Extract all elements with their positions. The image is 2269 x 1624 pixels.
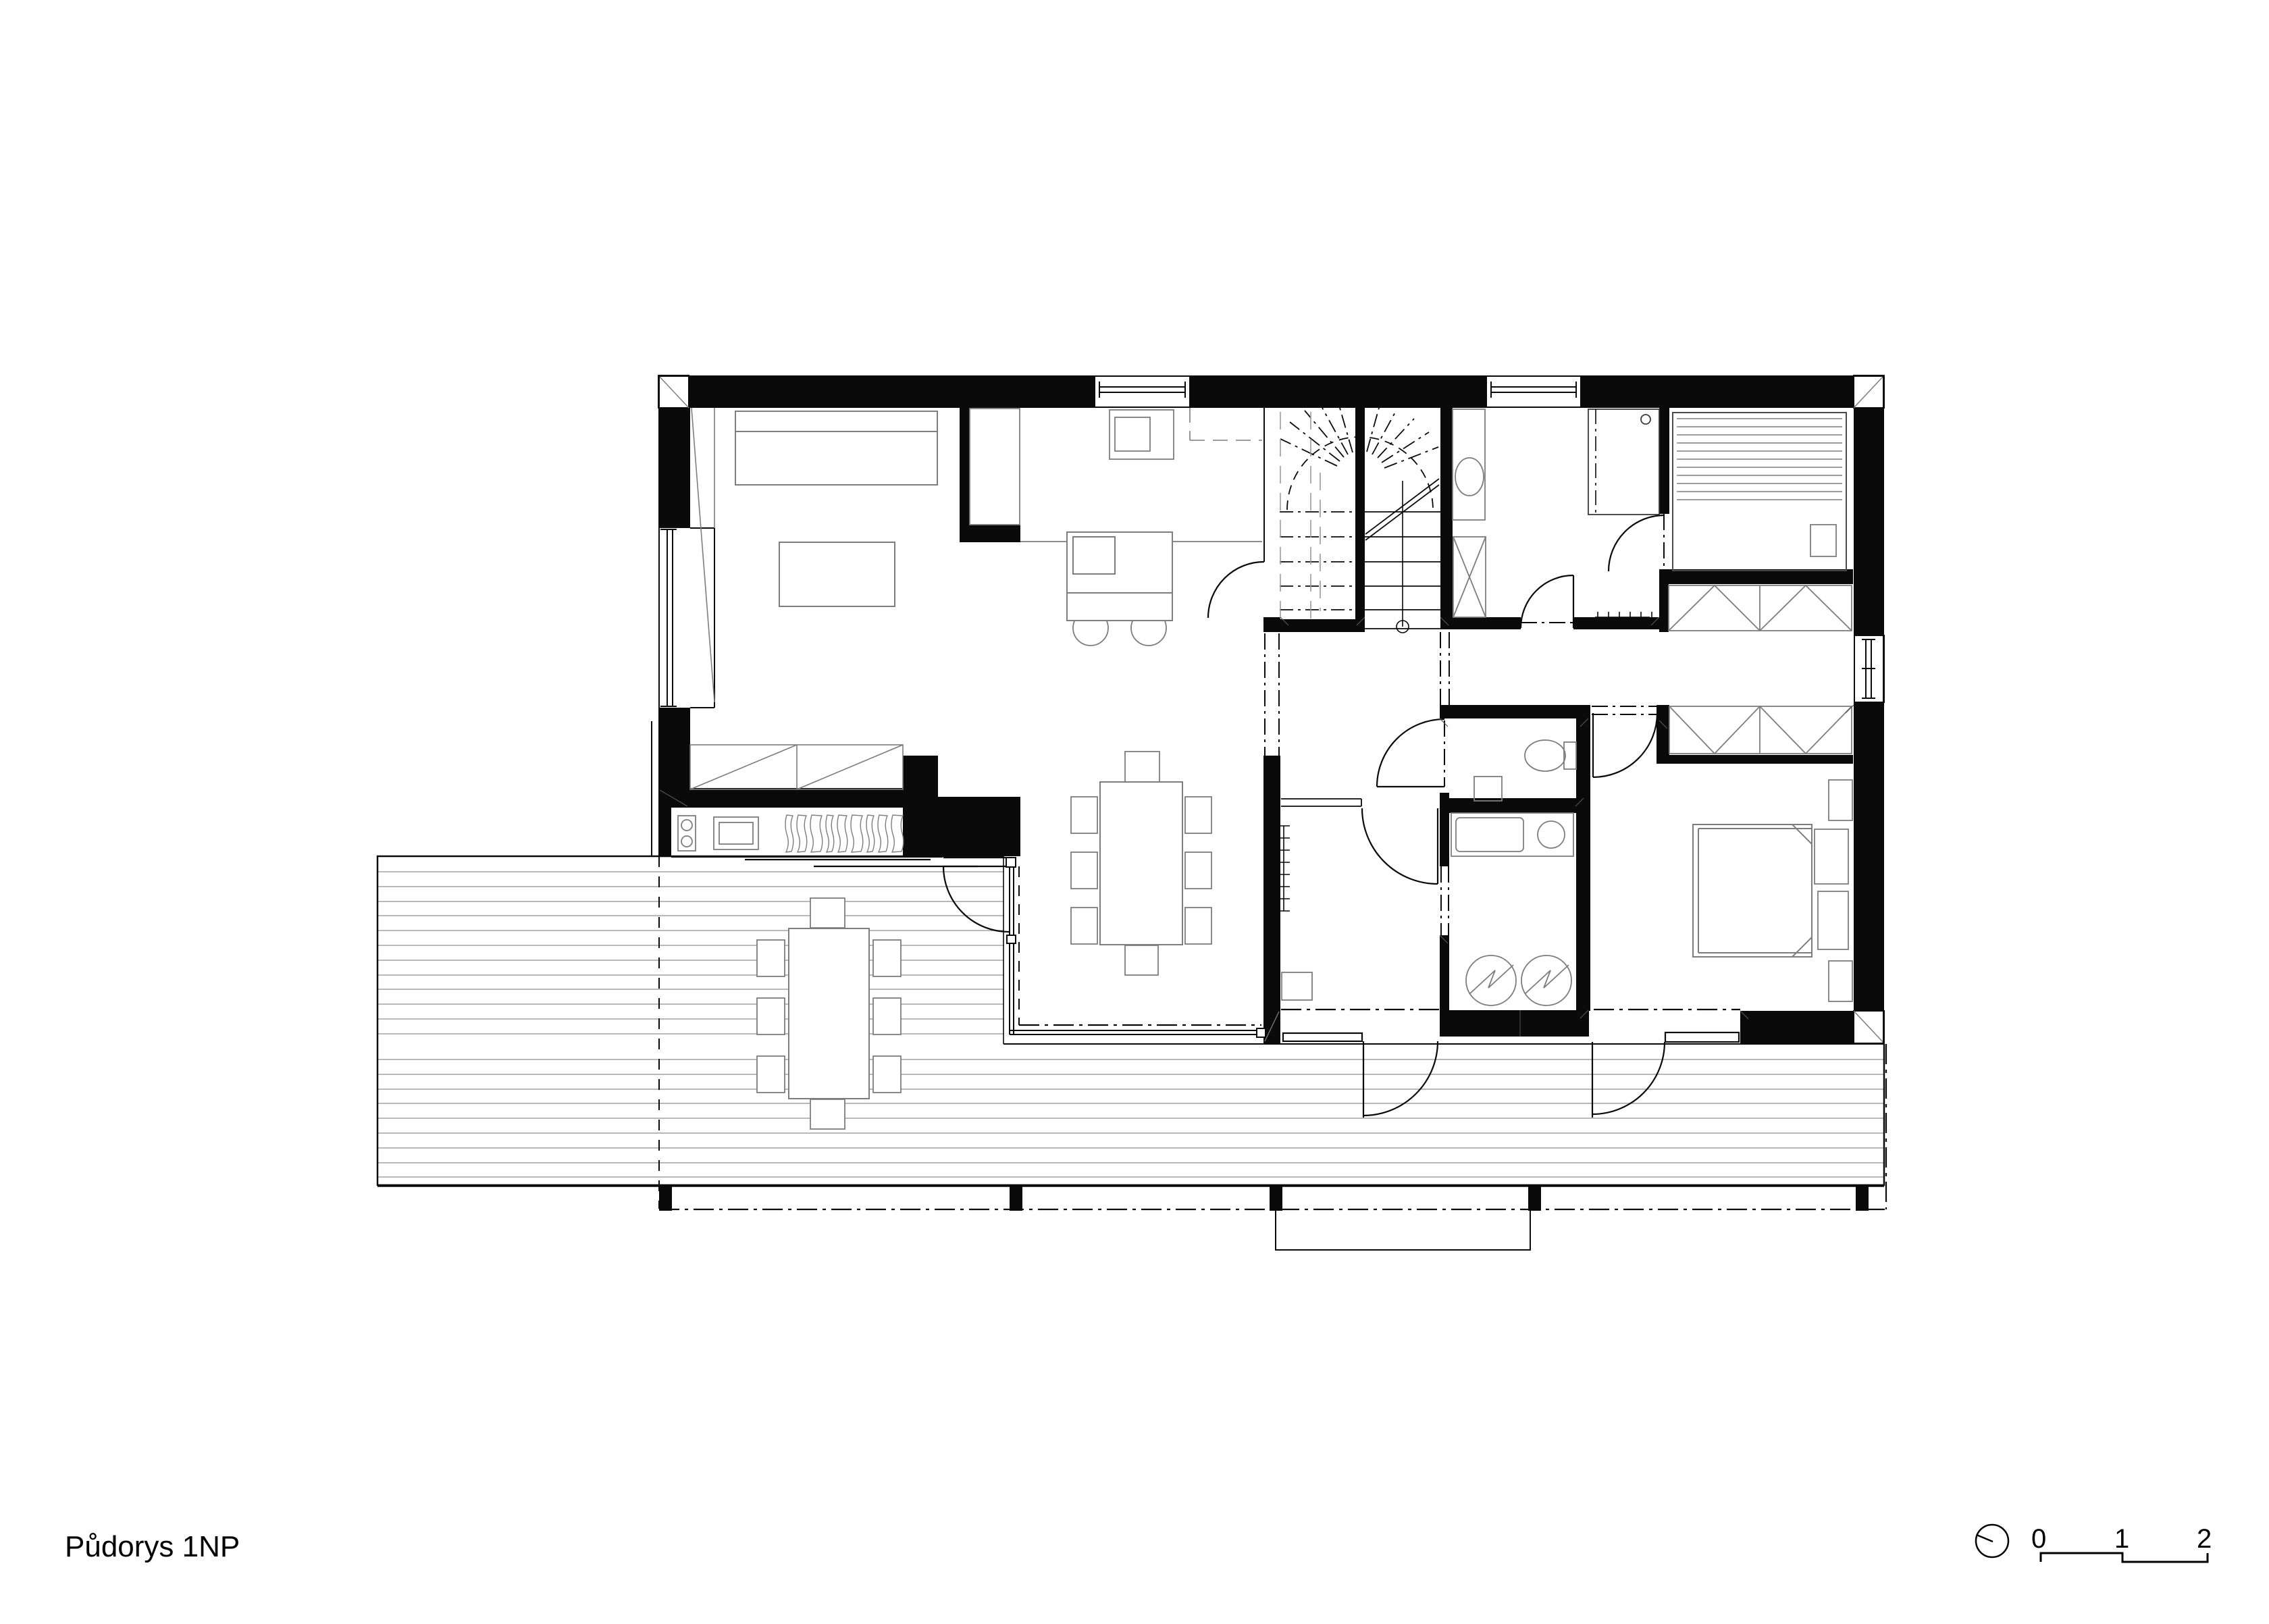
svg-text:Půdorys 1NP: Půdorys 1NP <box>65 1530 240 1563</box>
svg-text:1: 1 <box>2114 1524 2129 1554</box>
svg-text:0: 0 <box>2031 1524 2046 1554</box>
svg-text:2: 2 <box>2197 1524 2212 1554</box>
